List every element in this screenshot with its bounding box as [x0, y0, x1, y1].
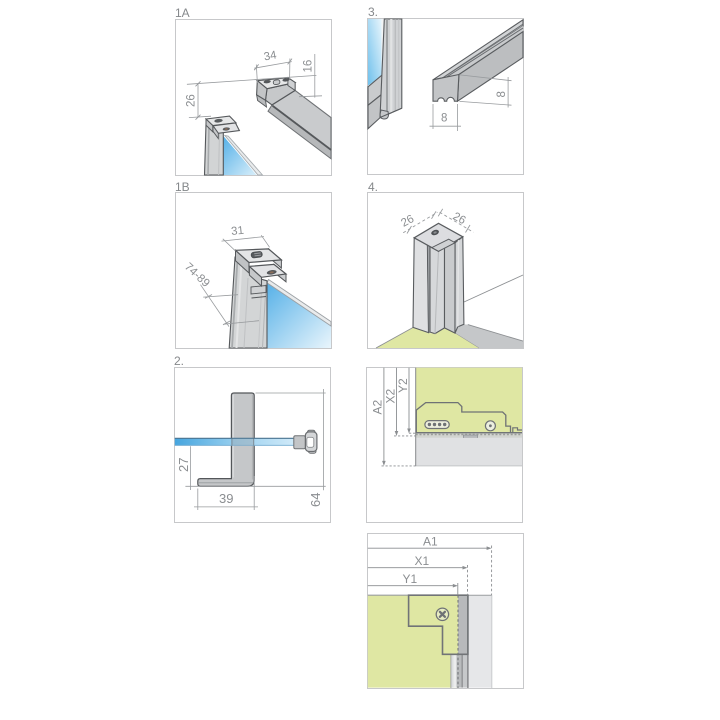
- svg-text:26: 26: [186, 94, 198, 107]
- svg-text:27: 27: [176, 458, 191, 472]
- svg-text:34: 34: [263, 49, 278, 63]
- svg-text:Y1: Y1: [403, 572, 418, 586]
- svg-text:39: 39: [219, 491, 233, 506]
- svg-text:Y2: Y2: [396, 378, 410, 393]
- svg-text:26: 26: [451, 211, 468, 228]
- svg-text:X1: X1: [415, 554, 430, 568]
- svg-text:A1: A1: [423, 535, 438, 549]
- svg-text:8: 8: [496, 91, 508, 97]
- svg-text:A2: A2: [371, 399, 385, 414]
- svg-text:64: 64: [308, 493, 323, 507]
- svg-text:31: 31: [231, 225, 245, 238]
- svg-text:26: 26: [399, 213, 416, 230]
- svg-text:16: 16: [303, 60, 315, 73]
- svg-text:74-89: 74-89: [182, 261, 212, 290]
- svg-text:8: 8: [441, 113, 447, 125]
- svg-text:X2: X2: [383, 388, 397, 403]
